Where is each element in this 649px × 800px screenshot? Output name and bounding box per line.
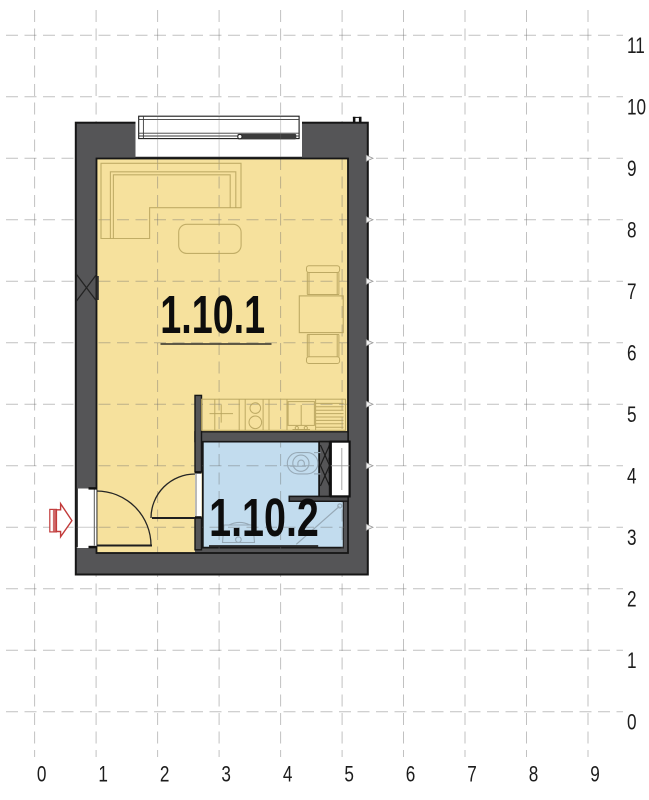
svg-text:0: 0 <box>37 763 47 788</box>
svg-text:2: 2 <box>160 763 170 788</box>
svg-text:1: 1 <box>627 649 637 674</box>
svg-text:1.10.2: 1.10.2 <box>209 487 319 547</box>
svg-text:3: 3 <box>627 526 637 551</box>
svg-text:10: 10 <box>627 95 646 120</box>
svg-text:6: 6 <box>627 341 637 366</box>
svg-text:9: 9 <box>590 763 600 788</box>
svg-text:7: 7 <box>627 280 637 305</box>
svg-text:3: 3 <box>221 763 231 788</box>
svg-text:1.10.1: 1.10.1 <box>160 284 265 344</box>
svg-text:5: 5 <box>627 403 637 428</box>
svg-text:11: 11 <box>627 34 645 59</box>
svg-text:2: 2 <box>627 587 637 612</box>
svg-text:1: 1 <box>98 763 108 788</box>
svg-text:8: 8 <box>529 763 539 788</box>
svg-text:7: 7 <box>467 763 477 788</box>
svg-text:5: 5 <box>344 763 354 788</box>
svg-text:9: 9 <box>627 157 637 182</box>
svg-text:6: 6 <box>406 763 416 788</box>
svg-text:4: 4 <box>627 464 637 489</box>
svg-text:0: 0 <box>627 710 637 735</box>
svg-text:8: 8 <box>627 218 637 243</box>
svg-text:4: 4 <box>283 763 293 788</box>
